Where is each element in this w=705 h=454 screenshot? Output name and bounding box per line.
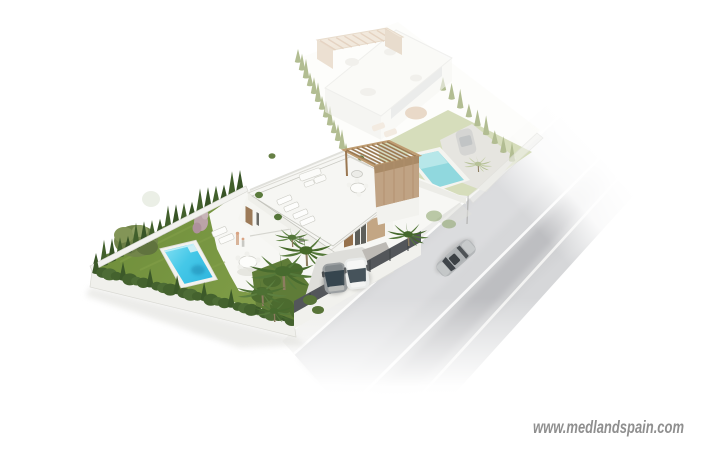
svg-text:www.medlandspain.com: www.medlandspain.com	[533, 417, 684, 437]
